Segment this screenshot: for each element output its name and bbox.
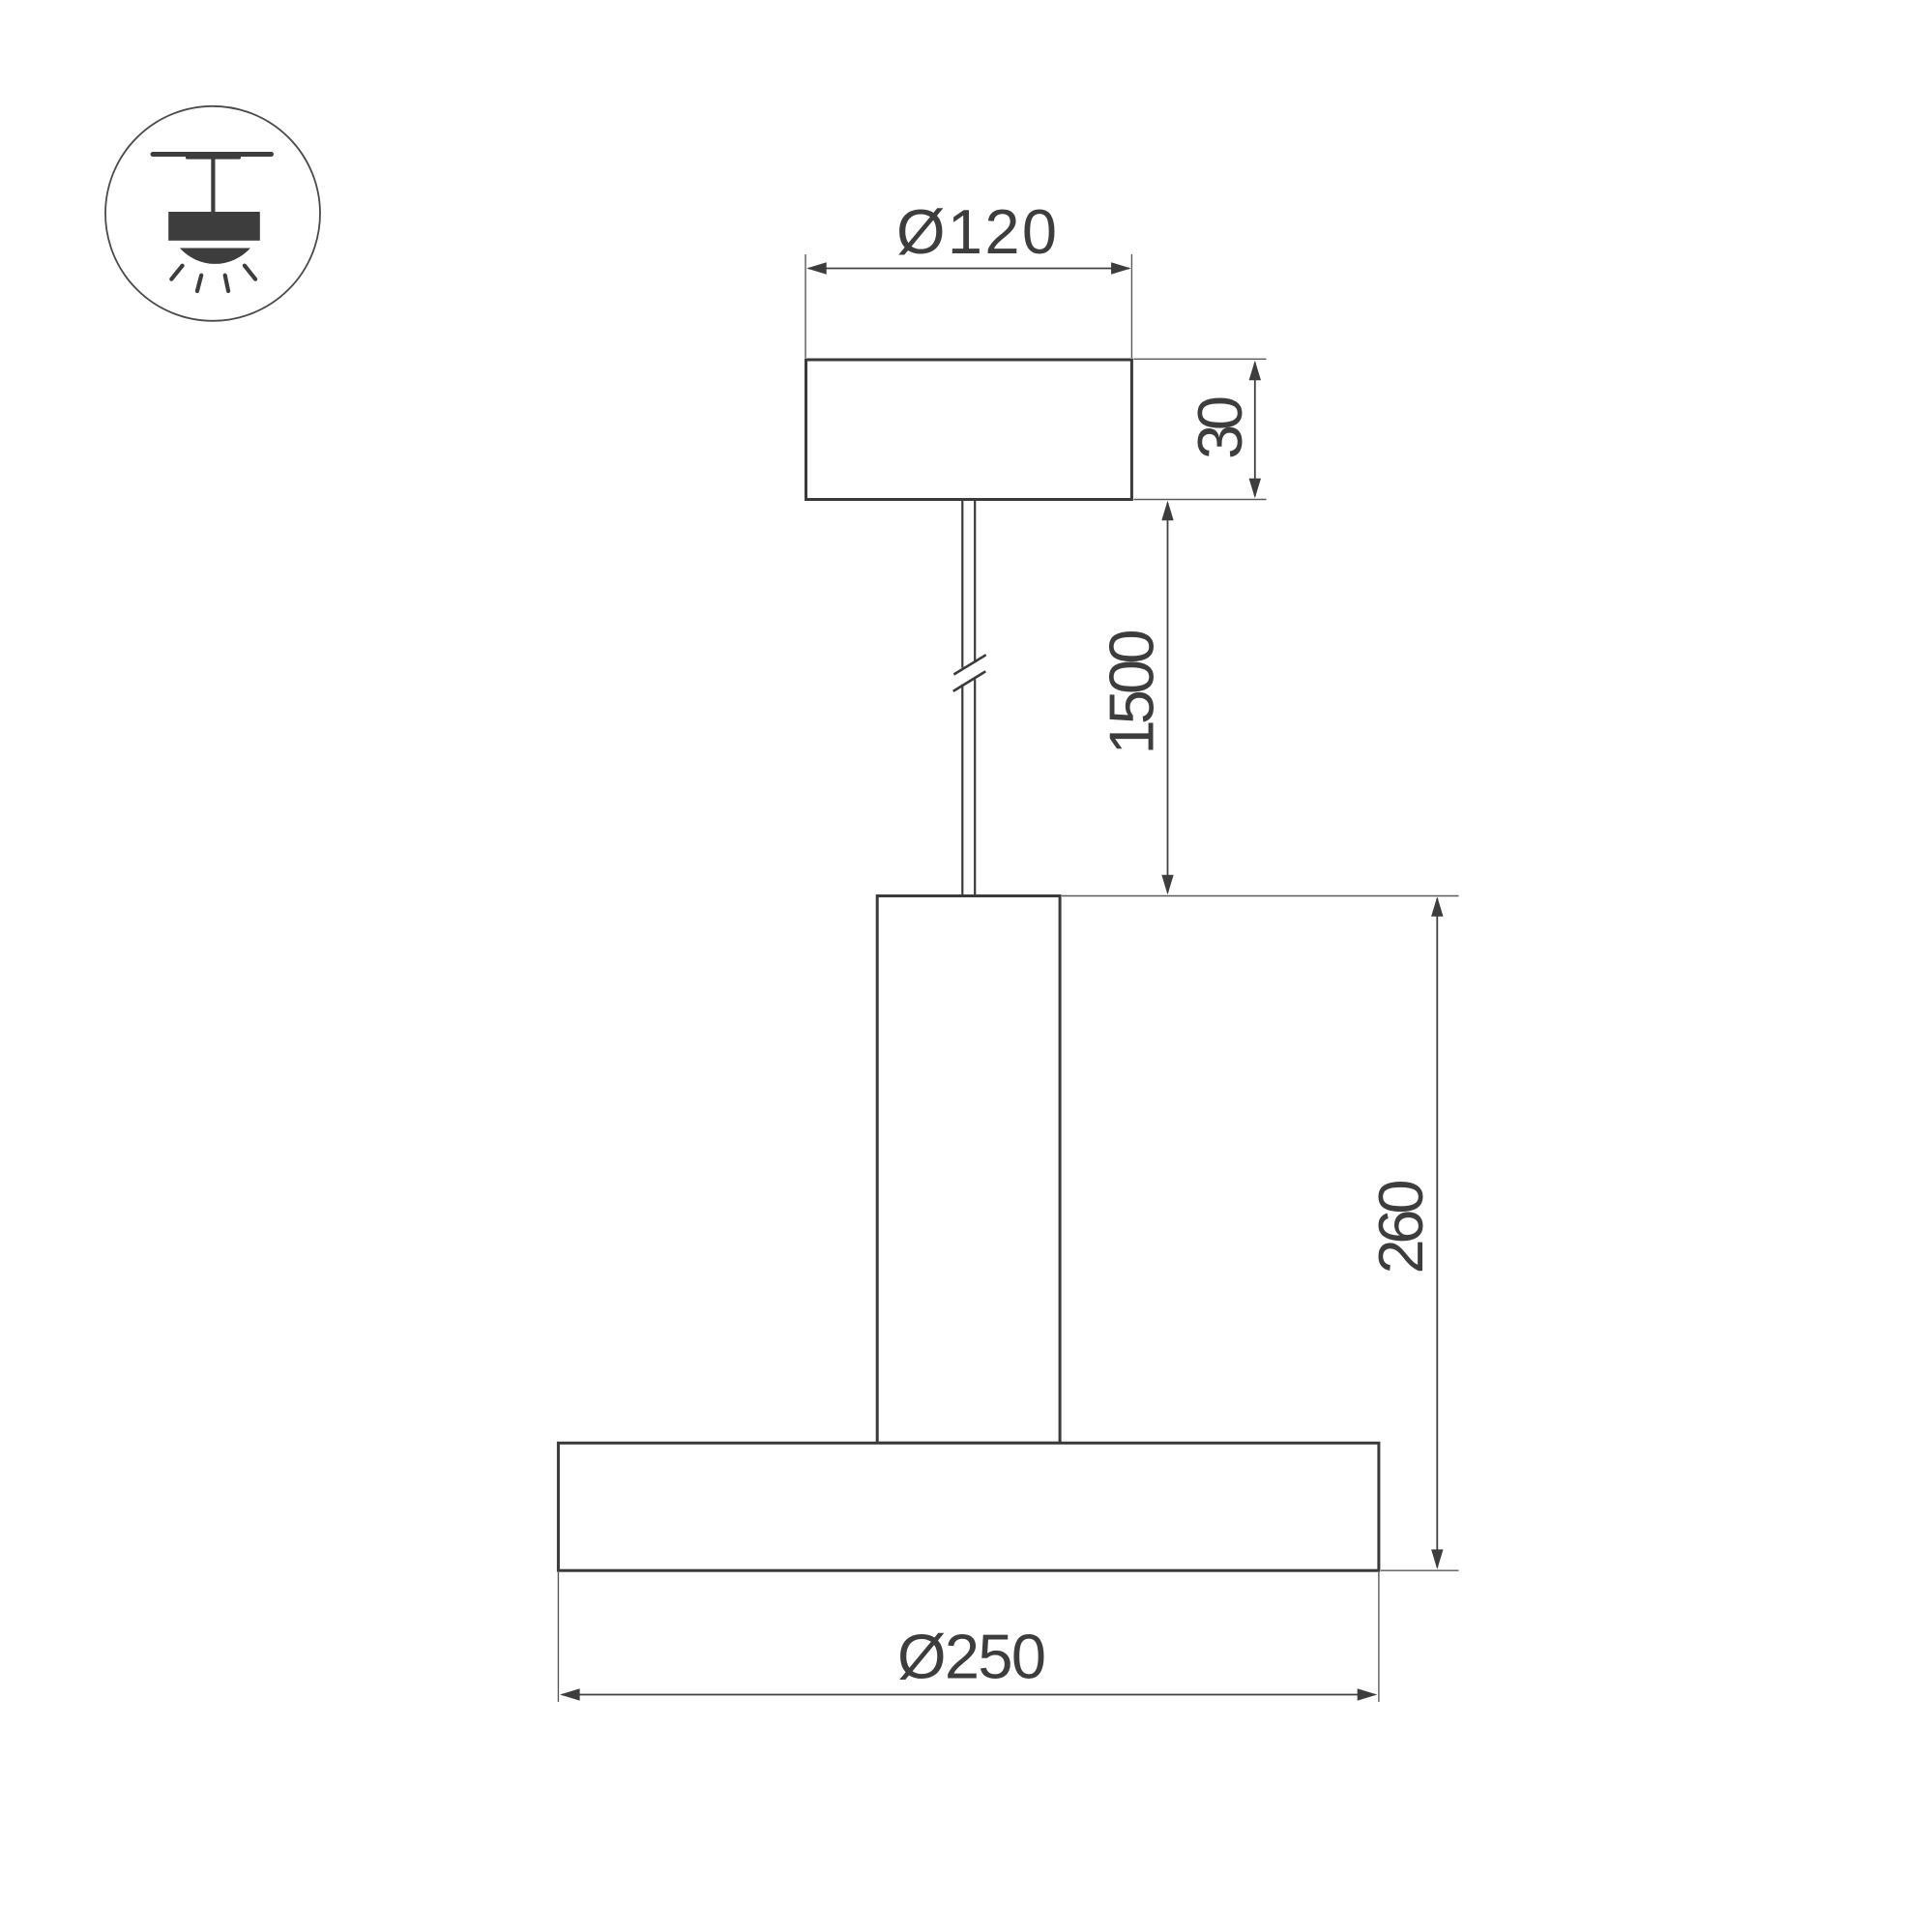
svg-text:Ø120: Ø120	[896, 196, 1057, 267]
svg-text:1500: 1500	[1097, 629, 1167, 755]
svg-text:30: 30	[1185, 395, 1255, 459]
svg-text:Ø250: Ø250	[897, 1622, 1046, 1692]
svg-text:260: 260	[1365, 1180, 1436, 1274]
